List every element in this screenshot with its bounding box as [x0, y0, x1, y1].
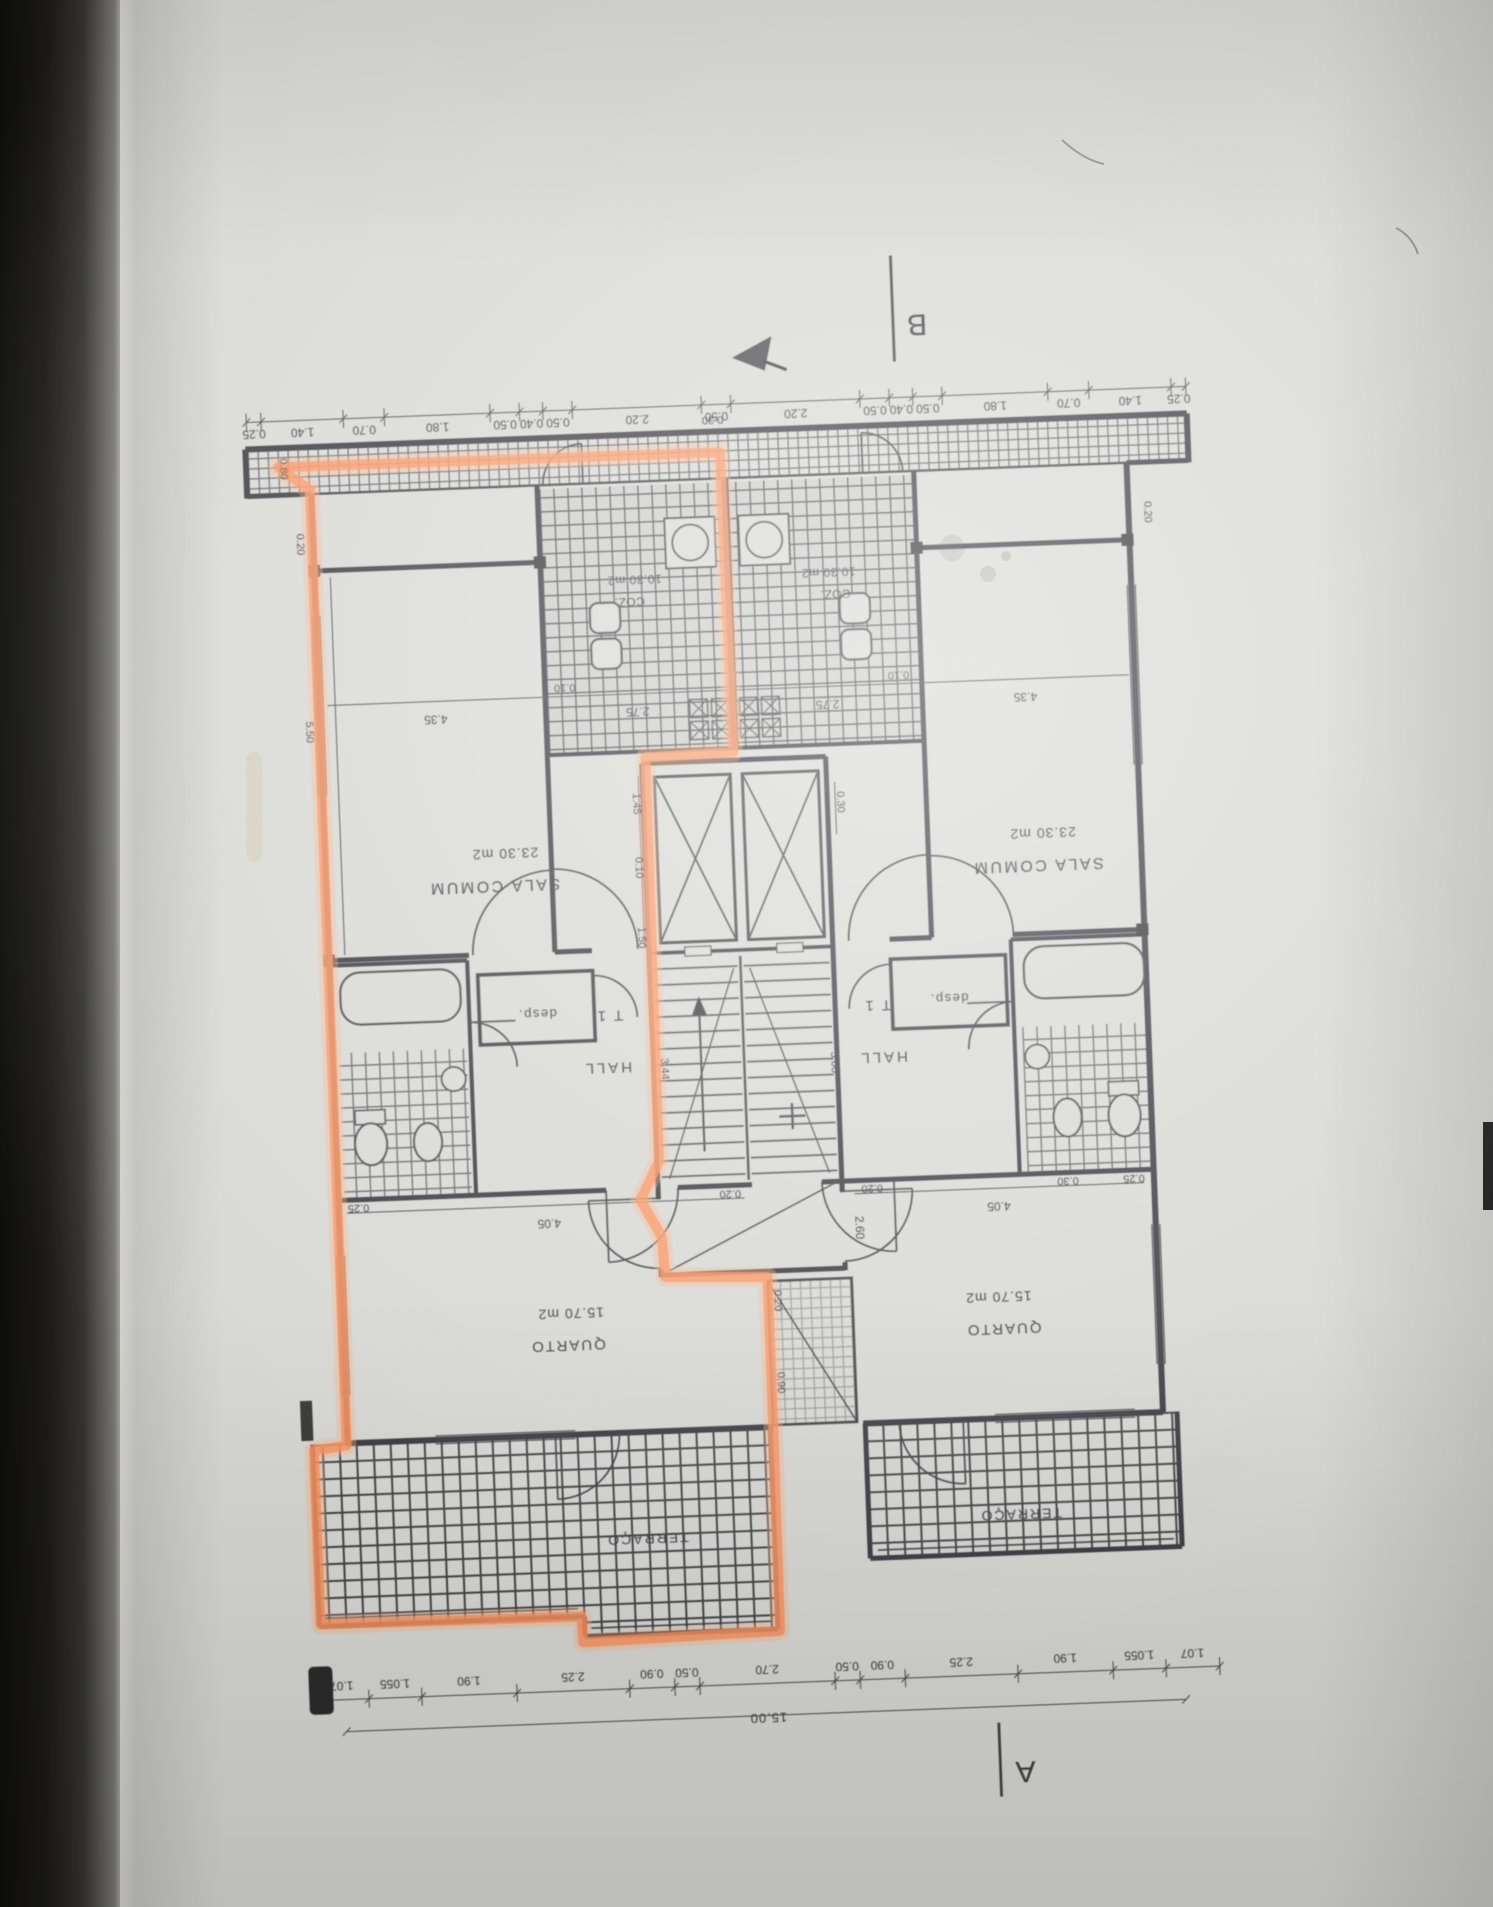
dimension-label: 0.50	[675, 1665, 699, 1680]
label-d145: 1.45	[630, 793, 643, 815]
dimension-label: 0.50	[835, 1659, 859, 1674]
label-d260: 2.60	[852, 1216, 867, 1240]
dimension-label: 2.25	[949, 1655, 973, 1670]
label-name: desp.	[929, 990, 969, 1006]
floor-plan-drawing: 0.251.400.701.800.500.400.502.200.502.20…	[0, 0, 1493, 1907]
dimension-label: 0.90	[870, 1658, 894, 1673]
dimension-label: 0.50	[863, 403, 887, 418]
plan-root: 0.251.400.701.800.500.400.502.200.502.20…	[236, 244, 1244, 1823]
label-name: SALA COMUM	[972, 854, 1104, 876]
label-d025: 0.25	[348, 1201, 370, 1214]
dimension-label: 1.80	[425, 420, 449, 435]
dimension-label: 2.20	[625, 412, 649, 427]
section-line-a	[999, 1723, 1002, 1797]
label-name: COZ.	[614, 594, 645, 609]
dimension-label: 0.40	[889, 402, 913, 417]
label-area: 15.70 m2	[537, 1304, 604, 1323]
label-d020: 0.20	[771, 1290, 784, 1312]
section-line-b	[890, 256, 894, 362]
label-b: B	[906, 307, 927, 341]
direction-arrow-tail	[762, 360, 786, 371]
label-name: TERRAÇO	[606, 1529, 689, 1548]
label-d300: 3.00	[828, 1051, 841, 1073]
label-name: desp.	[517, 1006, 557, 1022]
dimension-label: 1.80	[983, 398, 1007, 413]
elevator-cars	[654, 771, 825, 957]
label-d030: 0.30	[1057, 1174, 1079, 1187]
label-name: SALA COMUM	[428, 875, 560, 897]
dimension-label: 0.70	[352, 423, 376, 438]
dimension-label: 1.07	[1180, 1646, 1204, 1661]
page-edge-mark	[1483, 1122, 1493, 1210]
label-area: 10.30 m2	[607, 572, 662, 588]
label-d020: 0.20	[1141, 501, 1154, 523]
dimension-label: 1.90	[457, 1673, 481, 1688]
dimension-label: 1.40	[290, 425, 314, 440]
label-a: A	[1015, 1754, 1036, 1788]
label-d344: 3.44	[658, 1058, 671, 1080]
label-area: 10.30 m2	[801, 564, 856, 580]
label-d010: 0.10	[554, 681, 576, 694]
label-d020: 0.20	[861, 1182, 883, 1195]
dimension-label: 0.25	[242, 427, 266, 442]
label-d080: 0.80	[277, 458, 290, 480]
dimension-label: 0.25	[1166, 391, 1190, 406]
pencil-mark	[1062, 140, 1104, 164]
dimension-label: 2.25	[561, 1669, 585, 1684]
label-area: 23.30 m2	[1009, 824, 1076, 843]
dimension-label: 1.40	[1118, 393, 1142, 408]
dimension-label: 0.70	[1056, 395, 1080, 410]
label-d020: 0.20	[719, 1187, 741, 1200]
label-d435: 4.35	[1013, 689, 1037, 704]
label-d010: 0.10	[632, 857, 645, 879]
label-d275: 2.75	[815, 697, 839, 712]
label-name: HALL	[858, 1048, 908, 1067]
label-name: QUARTO	[530, 1335, 606, 1355]
kitchen-sink-right	[738, 514, 790, 566]
label-name: TERRAÇO	[979, 1505, 1062, 1524]
pencil-mark	[1396, 228, 1418, 254]
label-d010: 0.10	[888, 668, 910, 681]
dimension-label: 2.70	[755, 1662, 779, 1677]
dimension-label: 0.50	[916, 401, 940, 416]
terrace-right-hatch	[865, 1412, 1180, 1559]
label-d405: 4.05	[537, 1216, 561, 1231]
label-d435: 4.35	[424, 712, 448, 727]
label-unit_type: T 1	[595, 1006, 623, 1024]
label-d030: 0.30	[702, 413, 724, 426]
photographed-floorplan-page: 0.251.400.701.800.500.400.502.200.502.20…	[0, 0, 1493, 1907]
dimension-label: 2.20	[783, 406, 807, 421]
dimension-label: 0.50	[546, 415, 570, 430]
dimension-label: 1.90	[1053, 1651, 1077, 1666]
label-name: HALL	[582, 1058, 632, 1077]
dimension-label: 1.055	[1124, 1648, 1155, 1663]
yellow-smear	[246, 752, 262, 862]
dimension-chain-bottom: 1.071.0551.902.250.900.502.700.500.902.2…	[311, 1645, 1224, 1710]
label-d275: 2.75	[625, 704, 649, 719]
label-d020: 0.20	[294, 534, 307, 556]
label-d150: 1.50	[635, 927, 648, 949]
dimension-label: 0.90	[640, 1666, 664, 1681]
label-d090: 0.90	[774, 1372, 787, 1394]
dimension-label: 1.055	[379, 1676, 410, 1691]
label-name: QUARTO	[966, 1319, 1042, 1339]
label-d030: 0.30	[834, 791, 847, 813]
dimension-label: 0.50	[493, 417, 517, 432]
label-d550: 5.50	[303, 721, 316, 743]
dimension-label: 0.40	[519, 416, 543, 431]
kitchen-sink-left	[664, 517, 716, 569]
direction-arrow-icon	[731, 336, 772, 372]
label-name: COZ.	[820, 586, 851, 601]
label-dims_bottom_total: 15.00	[749, 1710, 787, 1726]
label-unit_type: T 1	[863, 996, 891, 1014]
label-d025: 0.25	[1123, 1172, 1145, 1185]
label-d405: 4.05	[987, 1199, 1011, 1214]
label-area: 15.70 m2	[965, 1288, 1032, 1307]
label-area: 23.30 m2	[472, 845, 539, 864]
